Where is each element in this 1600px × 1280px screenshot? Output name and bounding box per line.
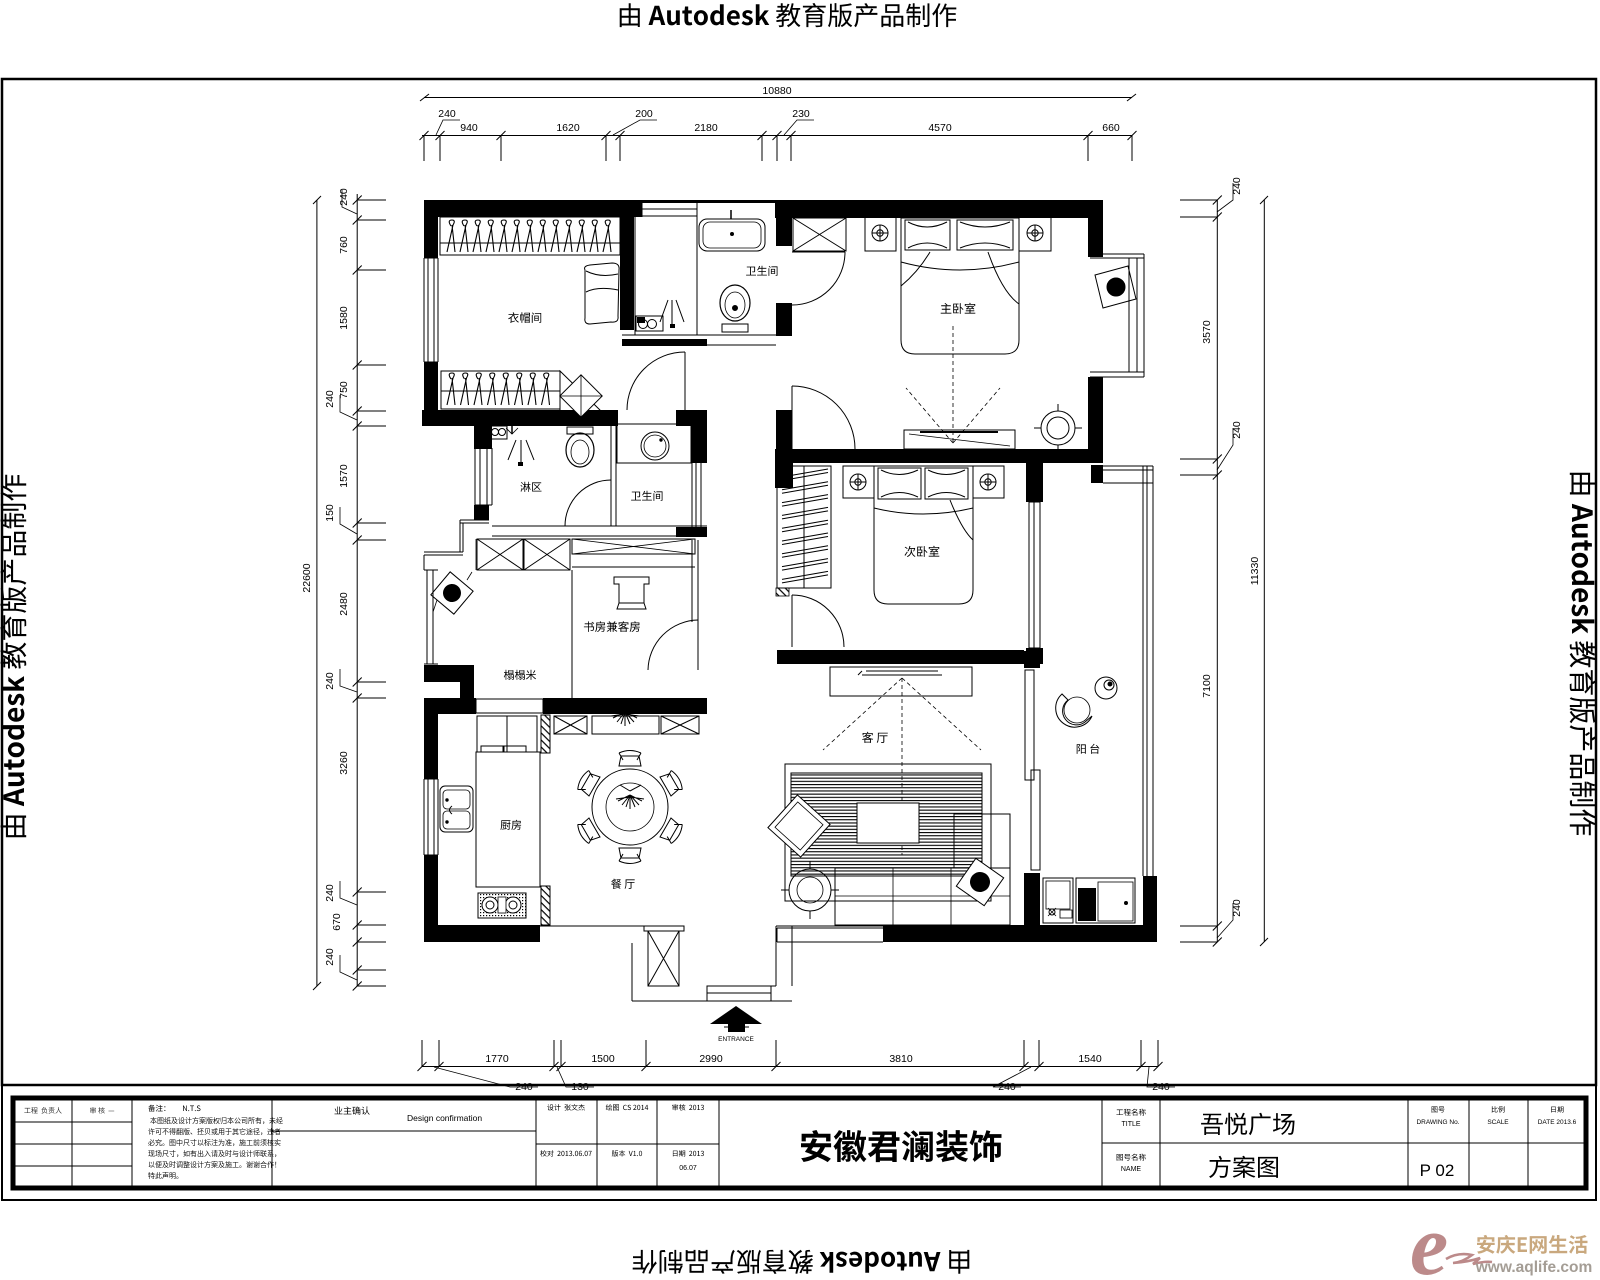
svg-text:06.07: 06.07 <box>679 1165 697 1172</box>
svg-text:3810: 3810 <box>889 1053 913 1065</box>
svg-text:ENTRANCE: ENTRANCE <box>718 1036 754 1043</box>
svg-text:2990: 2990 <box>699 1053 723 1065</box>
svg-text:240: 240 <box>324 672 336 690</box>
svg-text:240: 240 <box>324 390 336 408</box>
svg-text:1580: 1580 <box>338 306 350 330</box>
svg-text:特此声明。: 特此声明。 <box>148 1171 183 1180</box>
svg-text:660: 660 <box>1102 122 1120 134</box>
svg-text:1500: 1500 <box>591 1053 615 1065</box>
svg-text:230: 230 <box>792 108 810 120</box>
svg-text:22600: 22600 <box>301 563 313 592</box>
svg-text:3570: 3570 <box>1201 320 1213 344</box>
svg-text:DATE 2013.6: DATE 2013.6 <box>1538 1119 1577 1126</box>
svg-text:10880: 10880 <box>762 85 791 97</box>
svg-text:以便及时调整设计方案及施工。谢谢合作！: 以便及时调整设计方案及施工。谢谢合作！ <box>148 1160 281 1169</box>
svg-text:P 02: P 02 <box>1420 1161 1455 1180</box>
svg-text:7100: 7100 <box>1201 674 1213 698</box>
svg-text:4570: 4570 <box>928 122 952 134</box>
svg-text:许可不得翻版、抷贝或用于其它途径，违者: 许可不得翻版、抷贝或用于其它途径，违者 <box>148 1127 281 1136</box>
svg-text:3260: 3260 <box>338 751 350 775</box>
svg-text:1540: 1540 <box>1078 1053 1102 1065</box>
svg-text:240: 240 <box>438 108 456 120</box>
svg-text:240: 240 <box>324 948 336 966</box>
svg-text:150: 150 <box>324 504 336 522</box>
svg-text:TITLE: TITLE <box>1121 1121 1140 1128</box>
svg-text:本图纸及设计方案版权归本公司所有，未经: 本图纸及设计方案版权归本公司所有，未经 <box>150 1116 283 1125</box>
svg-text:必究。图中尺寸以标注为准，施工前须核实: 必究。图中尺寸以标注为准，施工前须核实 <box>148 1138 281 1147</box>
svg-text:670: 670 <box>331 913 343 931</box>
svg-text:760: 760 <box>338 236 350 254</box>
svg-text:SCALE: SCALE <box>1487 1119 1509 1126</box>
svg-text:240: 240 <box>324 884 336 902</box>
svg-text:11330: 11330 <box>1249 557 1261 586</box>
svg-text:240: 240 <box>338 188 350 206</box>
svg-text:1770: 1770 <box>485 1053 509 1065</box>
svg-text:Design confirmation: Design confirmation <box>407 1113 482 1123</box>
svg-text:www.aqlife.com: www.aqlife.com <box>1475 1259 1593 1276</box>
svg-text:940: 940 <box>460 122 478 134</box>
svg-text:DRAWING No.: DRAWING No. <box>1416 1119 1459 1126</box>
svg-text:1570: 1570 <box>338 464 350 488</box>
svg-text:e: e <box>1410 1197 1448 1280</box>
svg-text:2480: 2480 <box>338 592 350 616</box>
svg-text:2180: 2180 <box>694 122 718 134</box>
svg-text:现场尺寸，如有出入请及时与设计师联系，: 现场尺寸，如有出入请及时与设计师联系， <box>148 1149 281 1158</box>
svg-text:1620: 1620 <box>556 122 580 134</box>
svg-text:200: 200 <box>635 108 653 120</box>
svg-text:NAME: NAME <box>1121 1166 1142 1173</box>
